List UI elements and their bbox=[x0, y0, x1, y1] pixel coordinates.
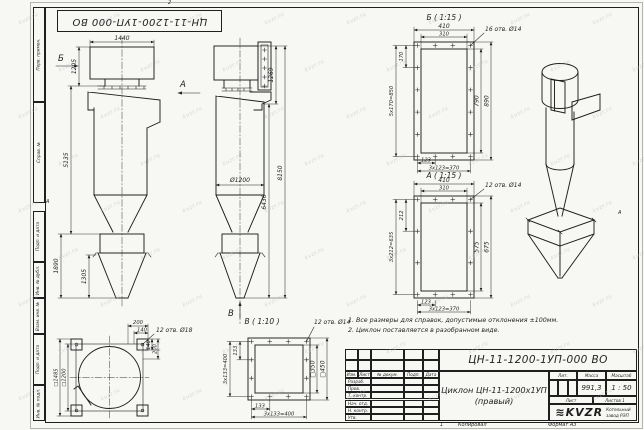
detail-v-title: В ( 1:10 ) bbox=[245, 317, 280, 326]
dim-b-inner-w: 310 bbox=[439, 32, 450, 38]
front-view-geometry bbox=[88, 47, 160, 298]
tb-cell bbox=[423, 392, 439, 399]
tb-cell bbox=[423, 400, 439, 407]
dim-b-inner-h: 790 bbox=[474, 95, 481, 107]
dim-front-inlet-h: 1205 bbox=[71, 59, 78, 74]
margin-label: Справ. № bbox=[37, 142, 42, 163]
side-view: Ø1200 1269 6436 8150 В bbox=[192, 34, 322, 330]
callout-v-holes: 12 отв. Ø14 bbox=[314, 319, 351, 326]
dim-top-outer-sq: □1485 bbox=[54, 368, 60, 387]
dim-a-pitch-sum: 3x212=635 bbox=[389, 231, 395, 262]
tb-cell bbox=[404, 360, 423, 371]
detail-v-dimensions: 133 3x133=400 □350 □450 133 3x133=400 bbox=[223, 338, 329, 419]
dim-a-outer-h: 675 bbox=[484, 241, 491, 253]
tb-cell bbox=[371, 378, 404, 385]
margin-box: Подп. и дата bbox=[33, 211, 45, 262]
isometric-geometry bbox=[526, 64, 600, 279]
designation-stamp: ЦН-11-1200-1УП-000 ВО bbox=[57, 10, 222, 32]
side-view-geometry bbox=[214, 42, 271, 298]
side-view-dimensions: Ø1200 1269 6436 8150 bbox=[216, 46, 287, 298]
dim-top-140: 140 bbox=[137, 328, 148, 334]
footer-format: Формат А3 bbox=[548, 422, 576, 428]
dim-a-outer-w: 410 bbox=[438, 177, 450, 184]
tb-logo-cell: ≋ KVZR Котельный завод РЭП bbox=[549, 404, 637, 421]
detail-v-geometry bbox=[248, 338, 310, 400]
tb-col-doc: № докум. bbox=[371, 371, 404, 378]
callout-b-holes: 16 отв. Ø14 bbox=[485, 26, 522, 33]
margin-label: Перв. примен. bbox=[37, 38, 42, 70]
tb-cell bbox=[423, 385, 439, 392]
front-view: 1440 1205 5135 1890 1305 Б А bbox=[50, 34, 202, 314]
tb-mass-value: 991,3 bbox=[577, 380, 606, 396]
margin-label: Подп. и дата bbox=[37, 345, 42, 374]
detail-a-dimensions: 410 310 212 3x212=635 575 675 123 3x123=… bbox=[389, 177, 493, 314]
tb-cell bbox=[345, 349, 358, 360]
logo-icon: ≋ bbox=[555, 406, 565, 419]
tb-cell bbox=[371, 400, 404, 407]
tb-designation: ЦН-11-1200-1УП-000 ВО bbox=[439, 349, 637, 371]
tb-cell bbox=[423, 360, 439, 371]
dim-side-diameter: Ø1200 bbox=[229, 177, 250, 184]
tb-cell bbox=[371, 392, 404, 399]
dim-v-outer-sq: □450 bbox=[320, 360, 327, 377]
dim-b-outer-w: 410 bbox=[438, 23, 450, 30]
detail-b-geometry bbox=[414, 42, 474, 160]
isometric-view bbox=[506, 44, 634, 310]
tb-role: Утв. bbox=[345, 414, 371, 421]
front-view-dimensions: 1440 1205 5135 1890 1305 bbox=[53, 35, 154, 298]
dim-top-r140: 140 bbox=[146, 339, 152, 350]
top-view-geometry bbox=[70, 336, 149, 418]
tb-role: Пров. bbox=[345, 385, 371, 392]
dim-b-pitch-sum: 5x170=850 bbox=[389, 85, 395, 116]
footer-sheet-num: 1 bbox=[440, 422, 443, 428]
tb-cell bbox=[404, 385, 423, 392]
dim-front-width: 1440 bbox=[114, 35, 129, 42]
margin-label: Подп. и дата bbox=[37, 222, 42, 251]
dim-front-cone-h: 1305 bbox=[81, 269, 88, 284]
margin-label: Инв. № дубл. bbox=[37, 265, 42, 294]
dim-v-pitch-b-sum: 3x133=400 bbox=[264, 412, 295, 418]
tb-sheets-value: 1 bbox=[622, 398, 625, 403]
margin-box: Инв. № дубл. bbox=[33, 262, 45, 298]
top-view-dimensions: 200 140 □1485 □1200 140 200 bbox=[54, 320, 161, 416]
tb-col-izm: Изм. bbox=[345, 371, 358, 378]
tb-cell bbox=[371, 360, 404, 371]
zone-letter-left: А bbox=[46, 199, 49, 205]
tb-cell bbox=[404, 392, 423, 399]
dim-side-total-h: 8150 bbox=[277, 165, 284, 180]
dim-b-pitch-b: 123 bbox=[421, 158, 431, 164]
dim-v-pitch-l: 133 bbox=[233, 346, 239, 356]
top-view: 200 140 □1485 □1200 140 200 12 отв. Ø18 bbox=[46, 318, 214, 428]
tb-lit-cell bbox=[558, 380, 567, 396]
zone-number-top: 2 bbox=[168, 0, 171, 6]
tb-cell bbox=[371, 414, 404, 421]
tb-drawing-name: Циклон ЦН-11-1200х1УП (правый) bbox=[439, 371, 549, 421]
dim-top-inner-sq: □1200 bbox=[62, 368, 68, 387]
tb-role: Н. контр. bbox=[345, 407, 371, 414]
tb-cell bbox=[404, 378, 423, 385]
margin-box: Подп. и дата bbox=[33, 334, 45, 385]
note-line: 1. Все размеры для справок, допустимые о… bbox=[348, 316, 636, 326]
notes: 1. Все размеры для справок, допустимые о… bbox=[348, 316, 636, 336]
dim-v-pitch-b: 133 bbox=[255, 404, 265, 410]
dim-side-head-h: 1269 bbox=[268, 67, 275, 82]
tb-cell bbox=[404, 414, 423, 421]
tb-col-data: Дата bbox=[423, 371, 439, 378]
detail-a-geometry bbox=[414, 196, 474, 298]
detail-b-title: Б ( 1:15 ) bbox=[427, 13, 462, 22]
company-logo: KVZR bbox=[566, 406, 603, 419]
tb-cell bbox=[371, 407, 404, 414]
tb-cell bbox=[423, 414, 439, 421]
footer-copied: Копировал bbox=[458, 422, 487, 428]
tb-role: Разраб. bbox=[345, 378, 371, 385]
detail-v-view: В ( 1:10 ) 133 3x133=400 □350 □450 133 3… bbox=[200, 314, 358, 428]
tb-cell bbox=[358, 360, 371, 371]
tb-col-podp: Подп. bbox=[404, 371, 423, 378]
title-block: Изм. Лист № докум. Подп. Дата Разраб. Пр… bbox=[345, 349, 637, 421]
dim-v-pitch-l-sum: 3x133=400 bbox=[223, 353, 229, 384]
tb-cell bbox=[404, 407, 423, 414]
tb-scale-value: 1 : 50 bbox=[606, 380, 637, 396]
tb-cell bbox=[423, 407, 439, 414]
detail-b-view: Б ( 1:15 ) 410 310 170 5x170=850 790 890… bbox=[366, 12, 524, 178]
tb-col-list: Лист bbox=[358, 371, 371, 378]
tb-cell bbox=[423, 378, 439, 385]
dim-a-pitch-b: 123 bbox=[421, 300, 431, 306]
section-label-a: А bbox=[179, 80, 186, 90]
dim-front-bunker-h: 1890 bbox=[53, 258, 60, 273]
callout-top-holes: 12 отв. Ø18 bbox=[156, 327, 193, 334]
tb-lit-cell bbox=[568, 380, 577, 396]
company-name: Котельный завод РЭП bbox=[606, 407, 630, 418]
dim-top-200: 200 bbox=[133, 320, 144, 326]
margin-box: Перв. примен. bbox=[33, 7, 45, 102]
tb-role: Т. контр. bbox=[345, 392, 371, 399]
tb-cell bbox=[371, 385, 404, 392]
company-line: завод РЭП bbox=[606, 413, 629, 418]
tb-sheets: Листов 1 bbox=[593, 396, 637, 404]
note-line: 2. Циклон поставляется в разобранном вид… bbox=[348, 326, 636, 336]
dim-v-inner-sq: □350 bbox=[310, 360, 317, 377]
tb-sheet-label: Лист bbox=[549, 396, 593, 404]
tb-cell bbox=[345, 360, 358, 371]
dim-a-pitch-b-sum: 3x123=370 bbox=[429, 307, 460, 313]
tb-lit-label: Лит. bbox=[549, 371, 577, 380]
dim-top-r200: 200 bbox=[153, 343, 159, 354]
tb-scale-label: Масштаб bbox=[606, 371, 637, 380]
tb-name-line2: (правый) bbox=[475, 396, 514, 407]
dim-b-pitch: 170 bbox=[399, 51, 405, 62]
dim-b-outer-h: 890 bbox=[484, 95, 491, 107]
tb-cell bbox=[404, 400, 423, 407]
dim-a-pitch: 212 bbox=[399, 210, 405, 220]
designation-stamp-text: ЦН-11-1200-1УП-000 ВО bbox=[72, 16, 207, 27]
tb-lit-cell bbox=[549, 380, 558, 396]
margin-box: Взам. инв. № bbox=[33, 298, 45, 334]
dim-side-lower-h: 6436 bbox=[261, 194, 268, 209]
margin-label: Инв. № подл. bbox=[37, 388, 42, 418]
dim-a-inner-h: 575 bbox=[474, 241, 481, 253]
tb-sheets-label: Листов bbox=[605, 398, 621, 403]
tb-cell bbox=[423, 349, 439, 360]
margin-box: Справ. № bbox=[33, 102, 45, 203]
detail-a-view: А ( 1:15 ) 410 310 212 3x212=635 575 675… bbox=[366, 170, 524, 316]
dim-a-inner-w: 310 bbox=[439, 186, 450, 192]
tb-cell bbox=[358, 349, 371, 360]
margin-box: Инв. № подл. bbox=[33, 385, 45, 421]
tb-mass-label: Масса bbox=[577, 371, 606, 380]
tb-cell bbox=[404, 349, 423, 360]
detail-b-callout: 16 отв. Ø14 bbox=[471, 26, 522, 46]
detail-b-dimensions: 410 310 170 5x170=850 790 890 123 3x123=… bbox=[389, 23, 493, 173]
section-label-b: Б bbox=[58, 54, 64, 64]
tb-role: Нач. отд. bbox=[345, 400, 371, 407]
tb-name-line1: Циклон ЦН-11-1200х1УП bbox=[441, 385, 547, 396]
tb-cell bbox=[371, 349, 404, 360]
margin-label: Взам. инв. № bbox=[37, 301, 42, 330]
dim-front-body-h: 5135 bbox=[63, 152, 70, 167]
drawing-sheet: Перв. примен. Справ. № Подп. и дата Инв.… bbox=[0, 0, 644, 430]
